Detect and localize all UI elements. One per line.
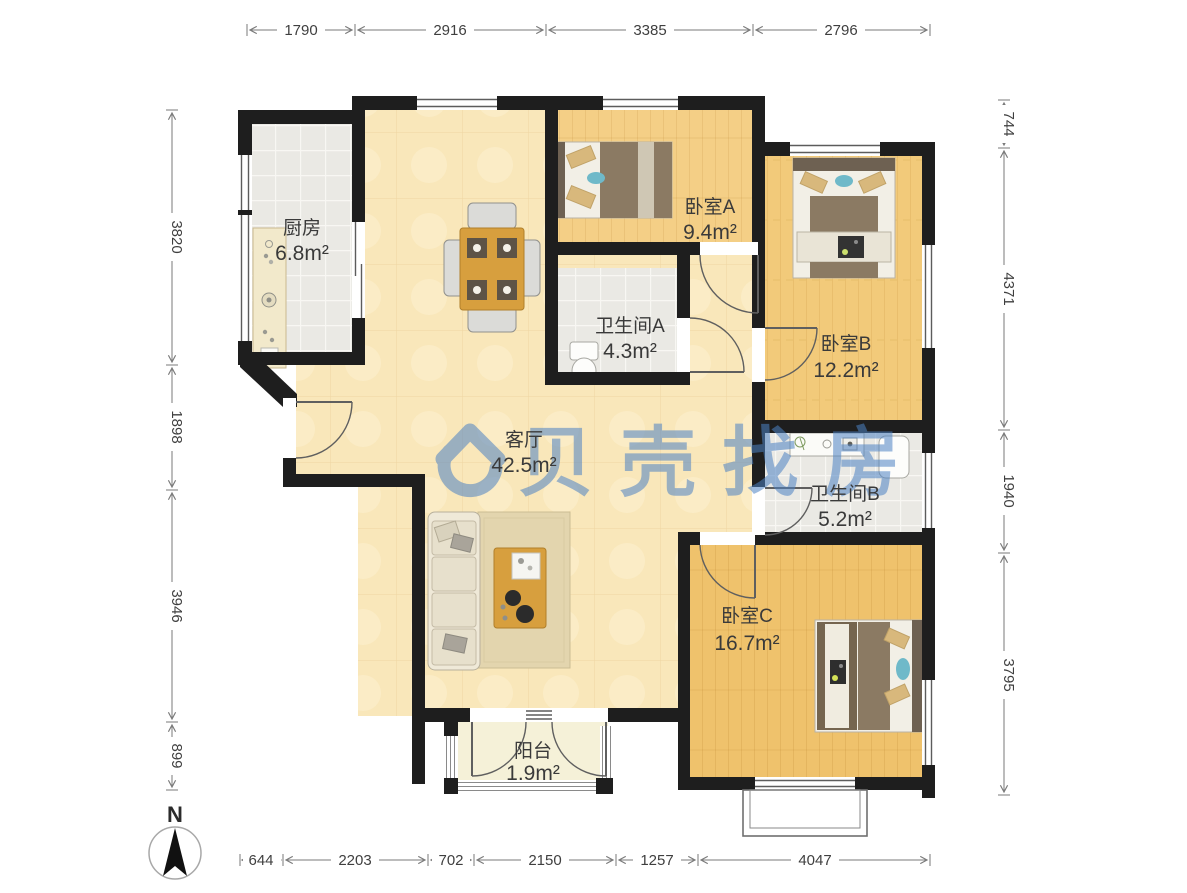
- bedroom-a-area: 9.4m²: [683, 221, 737, 244]
- living-label: 客厅: [505, 429, 543, 451]
- dim-top-3: 2796: [824, 22, 857, 39]
- dim-bottom-4: 1257: [640, 852, 673, 869]
- dim-right-0: 744: [1000, 111, 1017, 136]
- bedroom-c-label: 卧室C: [721, 605, 773, 627]
- compass-north-label: N: [167, 802, 183, 827]
- dim-left-0: 3820: [168, 220, 185, 253]
- floorplan-canvas: 贝壳找房 厨房 6.8m² 卧室A 9.4m² 卧室B 12.2m² 卫生间A …: [0, 0, 1187, 893]
- dim-left-2: 3946: [168, 589, 185, 622]
- bedroom-c-side-window: [922, 680, 935, 765]
- bedroom-b-area: 12.2m²: [813, 359, 878, 382]
- balcony-area: 1.9m²: [506, 762, 560, 785]
- bath-b-label: 卫生间B: [810, 483, 880, 505]
- kitchen-sliding-door: [352, 222, 365, 318]
- dim-right-3: 3795: [1000, 658, 1017, 691]
- compass: N: [149, 802, 201, 879]
- floorplan-page: 贝壳找房 厨房 6.8m² 卧室A 9.4m² 卧室B 12.2m² 卫生间A …: [0, 0, 1187, 893]
- bath-b-area: 5.2m²: [818, 508, 872, 531]
- dim-right-1: 4371: [1000, 272, 1017, 305]
- compass-needle-icon: [163, 828, 187, 876]
- bath-a-area: 4.3m²: [603, 340, 657, 363]
- dim-bottom: 644 2203 702 2150 1257 4047: [240, 851, 930, 869]
- dim-top-2: 3385: [633, 22, 666, 39]
- dim-left-1: 1898: [168, 410, 185, 443]
- dim-top-0: 1790: [284, 22, 317, 39]
- bed-c: [815, 620, 922, 732]
- dim-bottom-0: 644: [248, 852, 273, 869]
- dim-left-3: 899: [168, 743, 185, 768]
- dim-bottom-5: 4047: [798, 852, 831, 869]
- entry-floor: [296, 358, 420, 480]
- dining-chair-top: [468, 203, 516, 229]
- bedroom-b-top-window: [790, 142, 880, 156]
- dim-bottom-1: 2203: [338, 852, 371, 869]
- kitchen-label: 厨房: [283, 217, 321, 239]
- bed-b-headboard: [793, 158, 895, 171]
- bay-window: [743, 777, 867, 836]
- dim-top: 1790 2916 3385 2796: [247, 21, 930, 39]
- dim-bottom-3: 2150: [528, 852, 561, 869]
- kitchen-area: 6.8m²: [275, 242, 329, 265]
- top-window-bedroom-a: [603, 96, 678, 110]
- bedroom-a-label: 卧室A: [685, 196, 736, 218]
- sofa-set: [428, 512, 570, 670]
- dim-left: 3820 1898 3946 899: [163, 110, 185, 790]
- living-area: 42.5m²: [491, 454, 556, 477]
- bedroom-c-area: 16.7m²: [714, 632, 779, 655]
- kitchen-window: [238, 155, 252, 341]
- dim-top-1: 2916: [433, 22, 466, 39]
- dim-right-2: 1940: [1000, 474, 1017, 507]
- bedroom-b-label: 卧室B: [821, 333, 872, 355]
- dim-bottom-2: 702: [438, 852, 463, 869]
- bed-b: [793, 158, 895, 278]
- bed-a: [552, 142, 672, 218]
- bedroom-b-side-window: [922, 245, 935, 348]
- balcony-label: 阳台: [514, 740, 552, 762]
- dim-right: 744 4371 1940 3795: [995, 100, 1017, 795]
- bed-c-headboard: [912, 620, 922, 732]
- top-window-dining: [417, 96, 497, 110]
- bath-a-label: 卫生间A: [595, 315, 665, 337]
